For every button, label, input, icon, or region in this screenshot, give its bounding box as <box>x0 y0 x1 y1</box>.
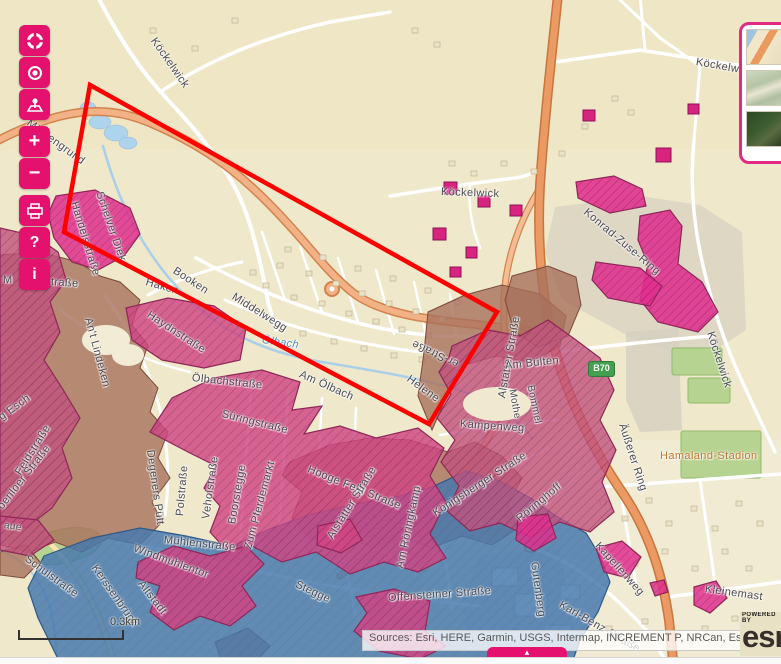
esri-logo: esri <box>742 624 781 650</box>
map-canvas[interactable]: KöckelwickMühlengrundHandelsstraßeKöckel… <box>0 0 781 657</box>
target-icon <box>25 63 45 83</box>
basemap-svg <box>0 0 781 657</box>
zoom-out-button[interactable]: − <box>19 158 50 189</box>
chevron-up-icon: ▲ <box>523 648 531 657</box>
extent-icon <box>25 31 45 51</box>
basemap-thumb-streets[interactable] <box>746 29 781 65</box>
info-button[interactable]: i <box>19 259 50 290</box>
printer-icon <box>25 201 45 221</box>
basemap-gallery-widget[interactable] <box>739 22 781 164</box>
map-toolbar: +−?i <box>19 25 50 291</box>
basemap-thumb-imagery[interactable] <box>746 111 781 147</box>
basemap-thumb-topographic[interactable] <box>746 70 781 106</box>
map-pin-button[interactable] <box>19 89 50 120</box>
map-viewport: KöckelwickMühlengrundHandelsstraßeKöckel… <box>0 0 781 663</box>
default-extent-button[interactable] <box>19 25 50 56</box>
help-button[interactable]: ? <box>19 227 50 258</box>
print-button[interactable] <box>19 195 50 226</box>
esri-logo-box: POWERED BY esri <box>740 612 781 656</box>
map-pin-icon <box>25 95 45 115</box>
zoom-in-button[interactable]: + <box>19 126 50 157</box>
my-location-button[interactable] <box>19 57 50 88</box>
